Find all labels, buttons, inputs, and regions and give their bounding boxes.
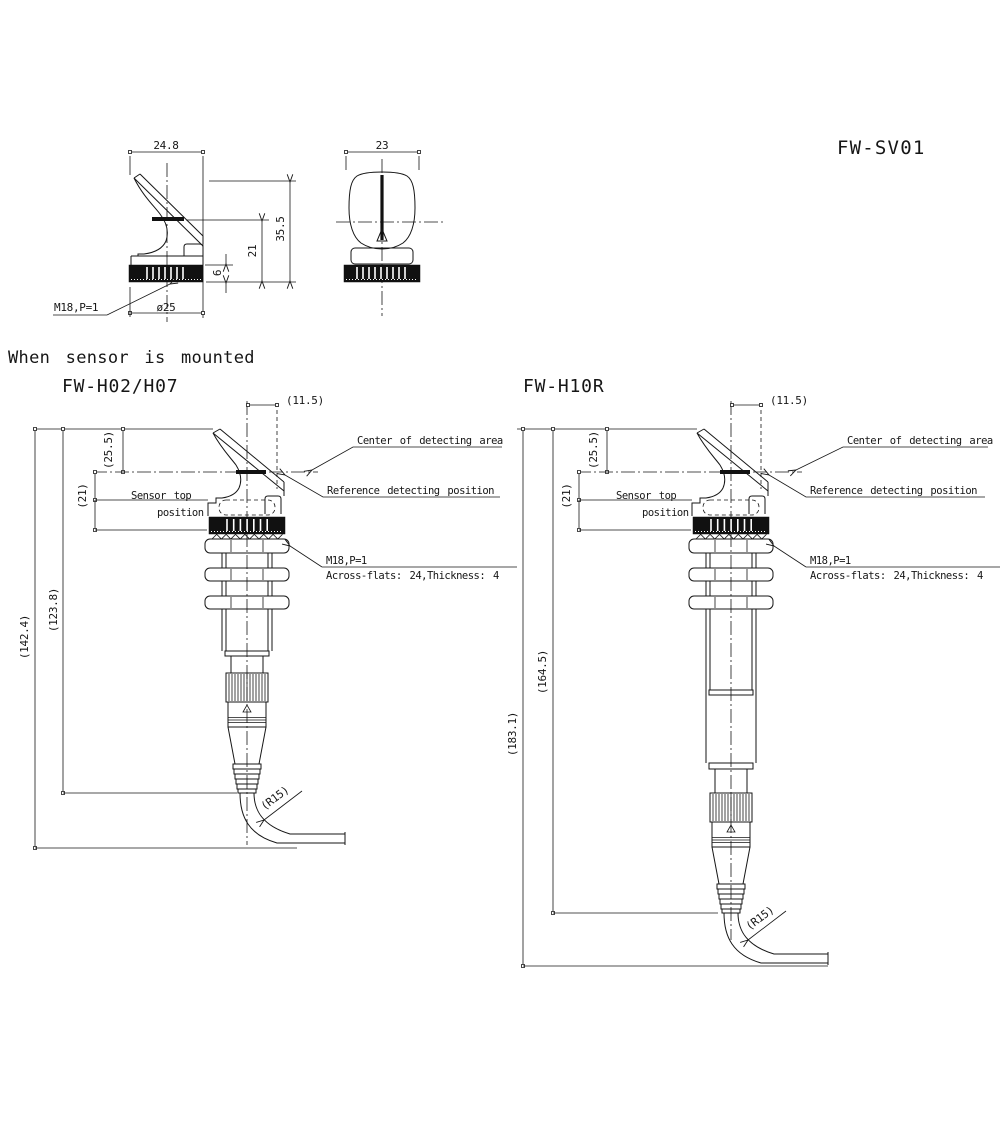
right-sensor-head [692,429,768,516]
right-assembly: (11.5) (25.5) (21) (164.5) (183.1) Senso… [506,394,1000,966]
left-dim-inner-length: (123.8) [47,588,60,632]
left-sensor-top-note-1: Sensor top [131,490,191,502]
right-dim-offset: (11.5) [770,394,808,407]
dim-side-nut-height: 6 [211,270,224,276]
left-dim-overall-length: (142.4) [18,615,31,659]
drawing-sheet: 24.8 35.5 21 6 ø25 M18,P=1 23 FW-SV01 Wh… [0,0,1000,1122]
mounted-heading: When sensor is mounted [8,348,255,368]
left-dim-top-depth: (21) [76,483,89,508]
right-knurled-nut [693,517,769,534]
right-dim-overall-length: (183.1) [506,712,519,756]
right-flats-note: Across-flats: 24,Thickness: 4 [810,570,983,582]
right-thread-note: M18,P=1 [810,555,851,567]
left-sensor-top-note-2: position [157,507,204,519]
dim-front-width: 23 [376,139,389,152]
left-flats-note: Across-flats: 24,Thickness: 4 [326,570,499,582]
side-view-knurled-nut [129,265,203,282]
right-sensor-top-note-2: position [642,507,689,519]
left-assembly: (11.5) (25.5) (21) (123.8) (142.4) Senso… [18,394,517,848]
left-dim-center-depth: (25.5) [102,431,115,469]
left-knurled-nut [209,517,285,534]
left-dim-offset: (11.5) [286,394,324,407]
dim-side-diameter: ø25 [157,301,176,314]
right-sensor-top-note-1: Sensor top [616,490,676,502]
right-variant-label: FW-H10R [523,376,604,397]
left-thread-note: M18,P=1 [326,555,367,567]
left-bend-radius: (R15) [258,783,291,812]
right-dim-top-depth: (21) [560,483,573,508]
left-variant-label: FW-H02/H07 [62,376,178,397]
right-dim-inner-length: (164.5) [536,650,549,694]
left-reference-note: Reference detecting position [327,485,494,497]
left-sensor-head [208,429,284,516]
right-cable [724,913,828,965]
front-view-knurled-nut [344,265,420,282]
left-cable [240,793,345,845]
right-dim-center-depth: (25.5) [587,431,600,469]
right-center-note: Center of detecting area [847,435,993,447]
dim-side-width: 24.8 [153,139,178,152]
right-bend-radius: (R15) [743,903,776,932]
left-body-barrel [222,609,272,673]
technical-drawing: 24.8 35.5 21 6 ø25 M18,P=1 23 FW-SV01 Wh… [0,0,1000,1122]
side-view: 24.8 35.5 21 6 ø25 M18,P=1 [53,139,296,322]
model-title: FW-SV01 [837,137,925,159]
dim-side-height: 35.5 [274,216,287,241]
right-reference-note: Reference detecting position [810,485,977,497]
side-thread-note: M18,P=1 [54,301,98,314]
dim-side-center-height: 21 [246,245,259,258]
left-center-note: Center of detecting area [357,435,503,447]
front-view: 23 [336,139,446,316]
